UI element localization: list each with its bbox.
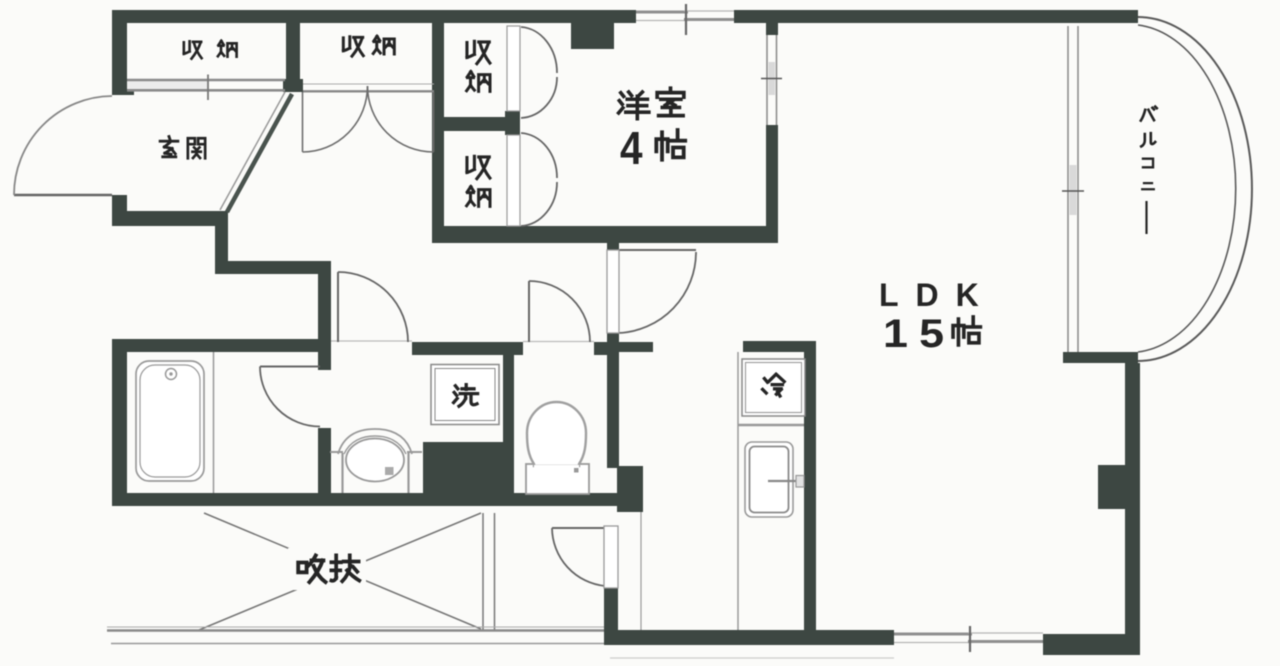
svg-text:LDK: LDK [879, 277, 996, 313]
svg-text:15: 15 [883, 311, 955, 355]
svg-text:4: 4 [620, 124, 643, 175]
